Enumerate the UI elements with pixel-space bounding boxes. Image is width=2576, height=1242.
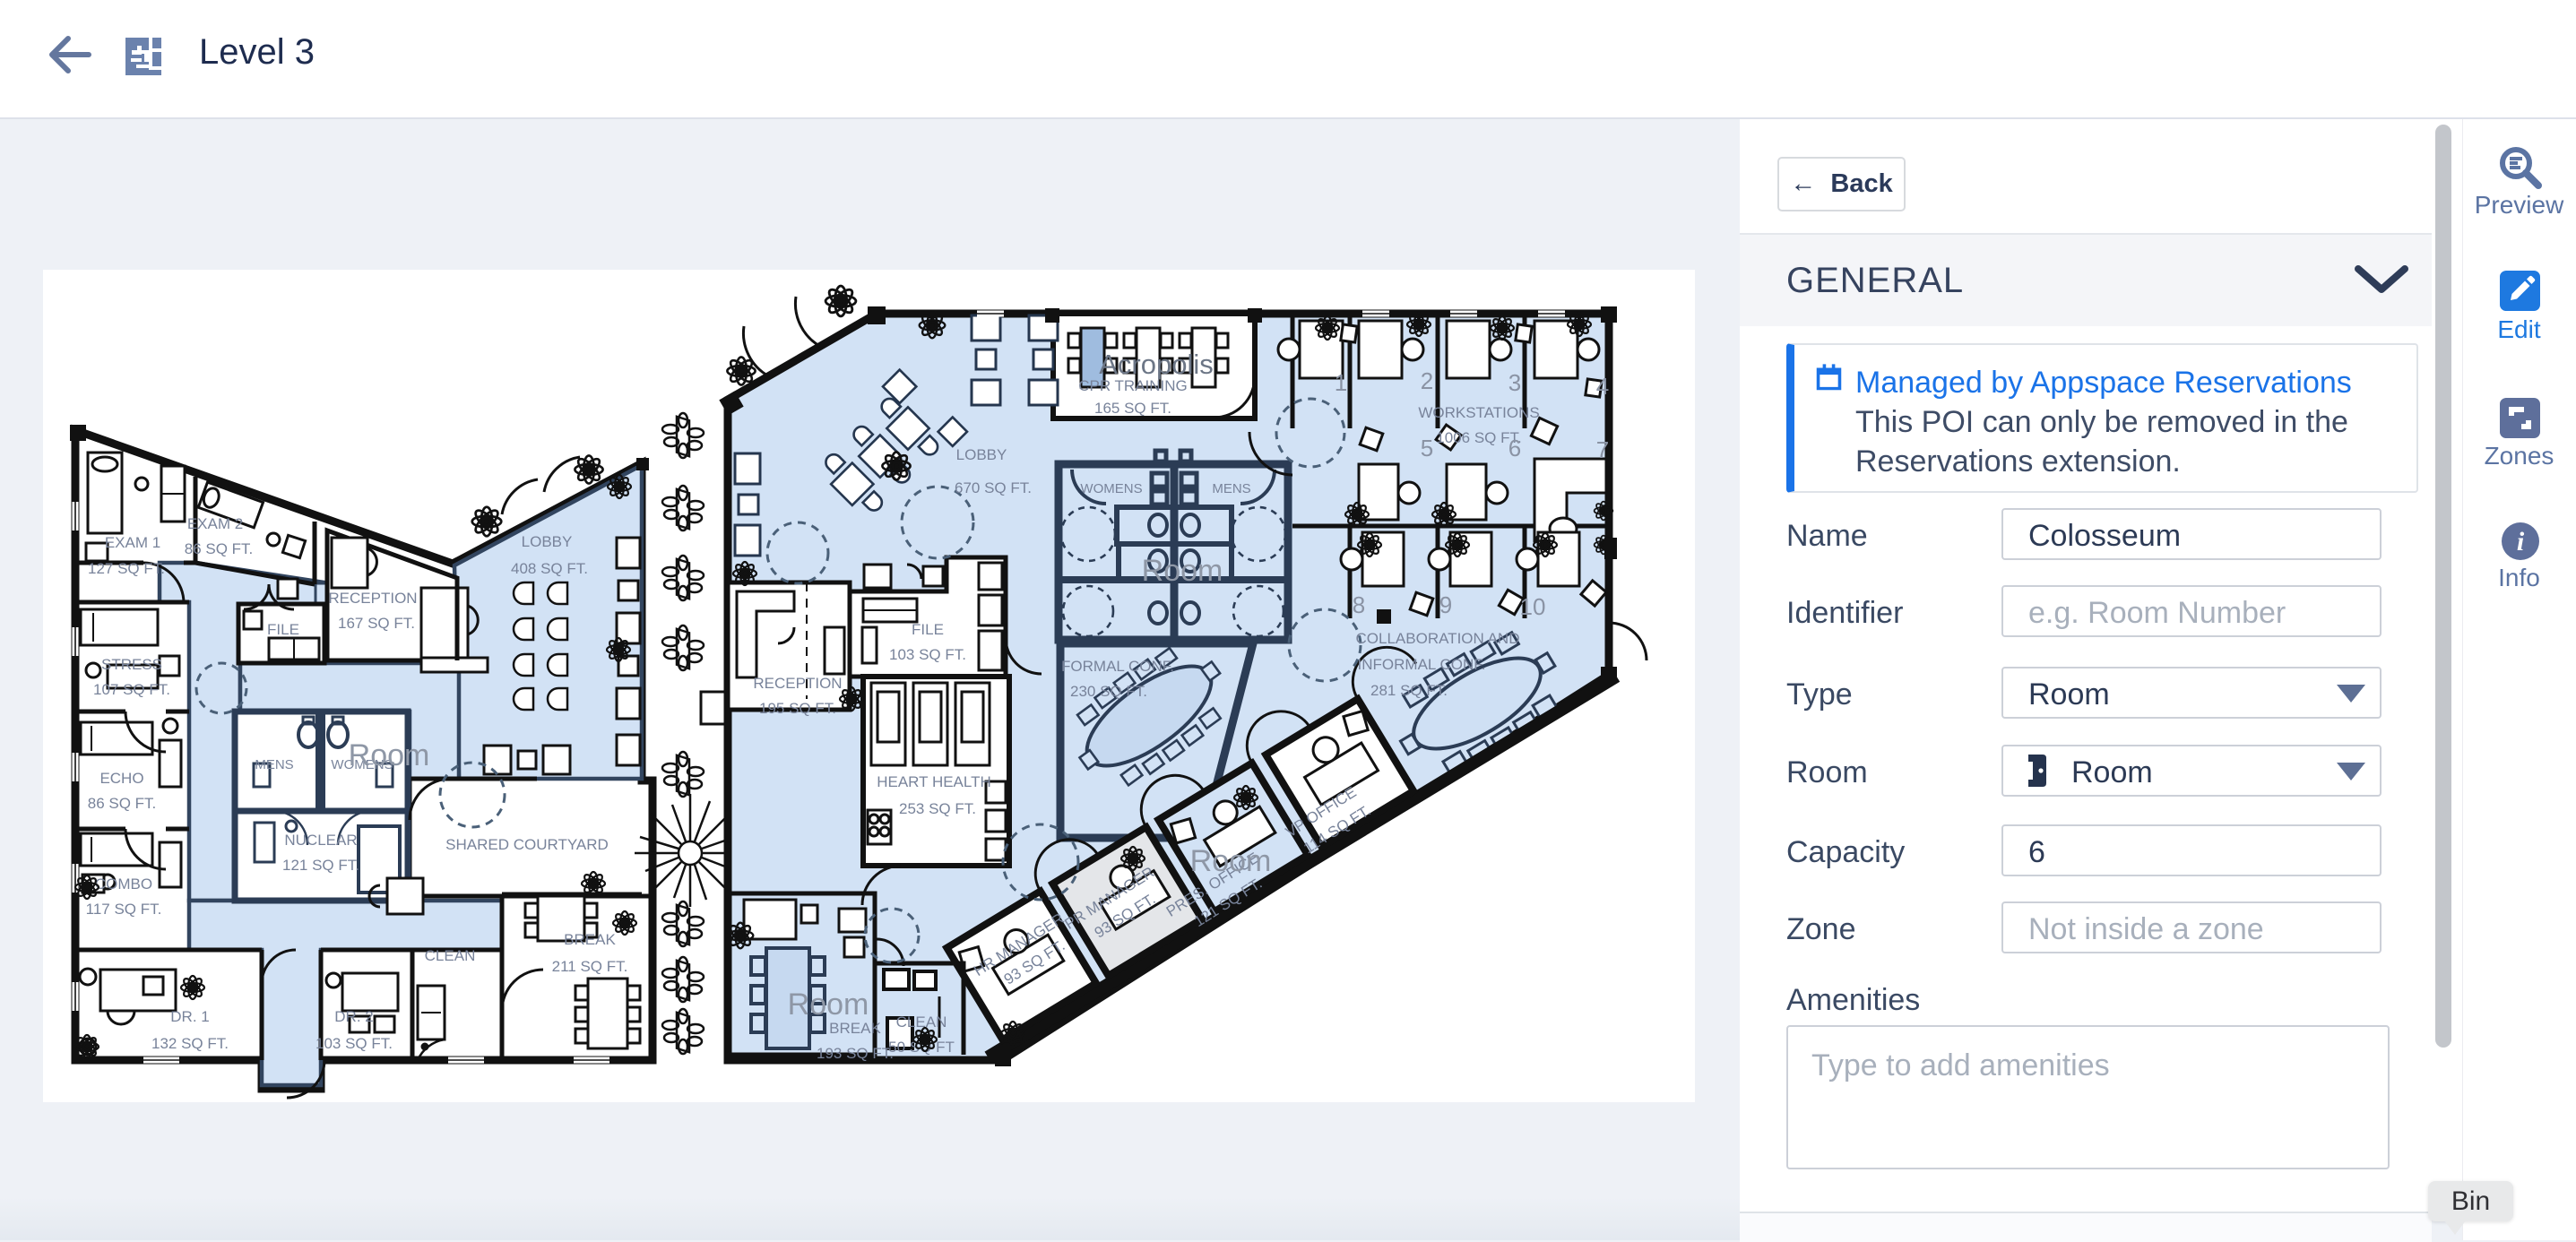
svg-text:DR. 1: DR. 1 xyxy=(170,1008,209,1025)
svg-text:121 SQ FT.: 121 SQ FT. xyxy=(282,857,359,874)
svg-text:FILE: FILE xyxy=(912,621,944,638)
svg-text:WORKSTATIONS: WORKSTATIONS xyxy=(1418,404,1539,421)
svg-text:FILE: FILE xyxy=(267,621,299,638)
svg-text:1: 1 xyxy=(1335,369,1347,396)
svg-text:253 SQ FT.: 253 SQ FT. xyxy=(899,800,976,817)
svg-text:86 SQ FT.: 86 SQ FT. xyxy=(185,540,254,557)
svg-text:LOBBY: LOBBY xyxy=(956,446,1007,463)
svg-text:3: 3 xyxy=(1508,369,1521,396)
svg-text:86 SQ FT.: 86 SQ FT. xyxy=(88,795,157,812)
svg-text:COMBO: COMBO xyxy=(95,875,152,893)
svg-text:7: 7 xyxy=(1596,436,1609,463)
svg-text:CLEAN: CLEAN xyxy=(896,1013,947,1031)
svg-text:2: 2 xyxy=(1421,367,1433,394)
svg-text:Room: Room xyxy=(1190,844,1272,878)
svg-text:4: 4 xyxy=(1596,373,1609,400)
svg-text:408 SQ FT.: 408 SQ FT. xyxy=(511,560,588,577)
svg-text:10: 10 xyxy=(1520,593,1546,620)
svg-text:Room: Room xyxy=(1142,554,1223,588)
svg-text:RECEPTION: RECEPTION xyxy=(328,590,417,607)
svg-text:230 SQ FT.: 230 SQ FT. xyxy=(1070,683,1147,700)
svg-text:FORMAL CONF.: FORMAL CONF. xyxy=(1061,658,1174,675)
svg-text:117 SQ FT.: 117 SQ FT. xyxy=(86,901,162,918)
svg-text:195 SQ FT.: 195 SQ FT. xyxy=(759,700,836,717)
svg-text:SHARED COURTYARD: SHARED COURTYARD xyxy=(445,836,609,853)
svg-text:WOMENS: WOMENS xyxy=(1080,481,1142,496)
svg-text:STRESS: STRESS xyxy=(101,656,162,673)
svg-text:DR. 2: DR. 2 xyxy=(334,1008,373,1025)
svg-text:6: 6 xyxy=(1508,435,1521,461)
svg-text:BREAK: BREAK xyxy=(564,931,616,948)
svg-text:Room: Room xyxy=(788,988,869,1022)
svg-text:132 SQ FT.: 132 SQ FT. xyxy=(151,1035,229,1052)
svg-text:670 SQ FT.: 670 SQ FT. xyxy=(955,479,1032,496)
svg-text:ECHO: ECHO xyxy=(99,770,143,787)
svg-text:COLLABORATION AND: COLLABORATION AND xyxy=(1356,630,1520,647)
svg-text:MENS: MENS xyxy=(255,757,293,772)
svg-text:Acropolis: Acropolis xyxy=(1099,349,1214,380)
svg-text:BREAK: BREAK xyxy=(829,1020,881,1037)
svg-text:INFORMAL CONF.: INFORMAL CONF. xyxy=(1358,656,1486,673)
svg-text:165 SQ FT.: 165 SQ FT. xyxy=(1094,400,1171,417)
svg-text:CLEAN: CLEAN xyxy=(425,947,476,964)
svg-text:HEART HEALTH: HEART HEALTH xyxy=(877,773,991,790)
svg-text:EXAM 1: EXAM 1 xyxy=(105,534,160,551)
svg-text:127 SQ FT.: 127 SQ FT. xyxy=(88,560,165,577)
svg-text:107 SQ FT.: 107 SQ FT. xyxy=(93,681,170,698)
svg-text:103 SQ FT.: 103 SQ FT. xyxy=(889,646,966,663)
svg-text:211 SQ FT.: 211 SQ FT. xyxy=(552,958,628,975)
svg-text:5: 5 xyxy=(1421,435,1433,461)
svg-text:281 SQ FT.: 281 SQ FT. xyxy=(1370,682,1448,699)
svg-text:i: i xyxy=(2517,527,2525,556)
svg-text:8: 8 xyxy=(1353,591,1365,618)
svg-text:Room: Room xyxy=(349,738,430,772)
svg-text:167 SQ FT.: 167 SQ FT. xyxy=(338,615,415,632)
svg-text:9: 9 xyxy=(1439,591,1452,618)
svg-text:EXAM 2: EXAM 2 xyxy=(187,515,243,532)
svg-text:NUCLEAR: NUCLEAR xyxy=(284,832,357,849)
svg-text:MENS: MENS xyxy=(1212,481,1250,496)
svg-text:LOBBY: LOBBY xyxy=(522,533,573,550)
svg-text:RECEPTION: RECEPTION xyxy=(753,675,842,692)
svg-text:103 SQ FT.: 103 SQ FT. xyxy=(316,1035,393,1052)
svg-text:193 SQ FT.: 193 SQ FT. xyxy=(817,1045,894,1062)
